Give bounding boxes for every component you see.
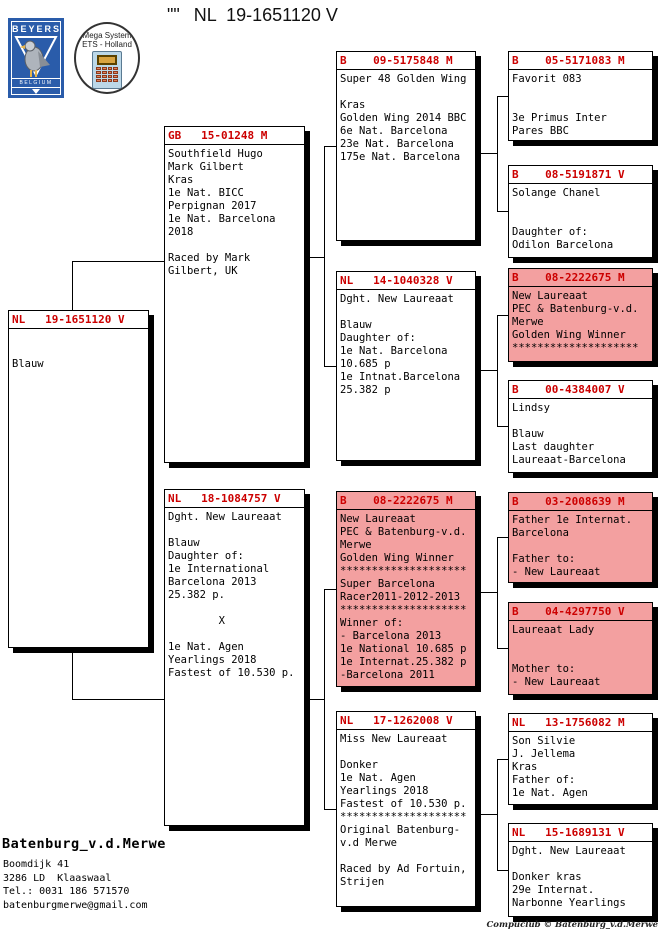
ring-number-header: NL 18-1084757 V <box>165 490 304 508</box>
pedigree-box-body: Lindsy Blauw Last daughter Laureaat-Barc… <box>509 399 652 467</box>
ring-number-header: NL 13-1756082 M <box>509 714 652 732</box>
pedigree-box-body: Dght. New Laureaat Donker kras 29e Inter… <box>509 842 652 910</box>
pedigree-connector <box>497 96 498 211</box>
owner-name: Batenburg_v.d.Merwe <box>2 836 166 852</box>
pedigree-connector <box>481 814 497 815</box>
pedigree-box-grandmother-paternal: NL 14-1040328 V Dght. New Laureaat Blauw… <box>336 271 476 461</box>
pedigree-connector <box>72 261 164 262</box>
pedigree-box-great-grandparent: B 00-4384007 V Lindsy Blauw Last daughte… <box>508 380 653 473</box>
pedigree-connector <box>497 315 498 426</box>
ring-number-header: NL 17-1262008 V <box>337 712 475 730</box>
pedigree-box-subject: NL 19-1651120 V Blauw <box>8 310 149 648</box>
beyers-logo: BEYERS BELGIUM <box>8 18 64 98</box>
pedigree-box-mother: NL 18-1084757 V Dght. New Laureaat Blauw… <box>164 489 305 826</box>
beyers-logo-triangle <box>32 89 40 94</box>
ring-number-header: B 05-5171083 M <box>509 52 652 70</box>
calculator-keys <box>96 67 118 82</box>
pedigree-box-body: Father 1e Internat. Barcelona Father to:… <box>509 511 652 579</box>
pedigree-connector <box>481 592 497 593</box>
pedigree-box-body: Southfield Hugo Mark Gilbert Kras 1e Nat… <box>165 145 304 278</box>
pedigree-connector <box>324 366 336 367</box>
ring-number-header: B 08-2222675 M <box>337 492 475 510</box>
pedigree-box-body: Dght. New Laureaat Blauw Daughter of: 1e… <box>337 290 475 397</box>
mega-system-logo: Mega System ETS - Holland <box>74 22 140 94</box>
pedigree-box-great-grandparent: B 08-5191871 V Solange Chanel Daughter o… <box>508 165 653 258</box>
pedigree-box-body: Miss New Laureaat Donker 1e Nat. Agen Ye… <box>337 730 475 889</box>
mega-system-name: Mega System <box>76 31 138 40</box>
ring-number-header: B 09-5175848 M <box>337 52 475 70</box>
pedigree-box-grandfather-paternal: B 09-5175848 M Super 48 Golden Wing Kras… <box>336 51 476 241</box>
pedigree-connector <box>497 315 508 316</box>
ring-number-header: B 00-4384007 V <box>509 381 652 399</box>
pedigree-connector <box>324 146 336 147</box>
ring-number-header: GB 15-01248 M <box>165 127 304 145</box>
pedigree-box-great-grandparent: NL 15-1689131 V Dght. New Laureaat Donke… <box>508 823 653 917</box>
beyers-logo-frame: BEYERS BELGIUM <box>11 21 61 95</box>
pedigree-connector <box>497 870 508 871</box>
mega-system-subtitle: ETS - Holland <box>76 40 138 49</box>
calculator-screen <box>97 55 117 65</box>
pedigree-box-great-grandparent: B 05-5171083 M Favorit 083 3e Primus Int… <box>508 51 653 141</box>
pedigree-connector <box>497 537 498 648</box>
pedigree-connector <box>310 699 324 700</box>
pedigree-connector <box>481 153 497 154</box>
pedigree-box-body: Son Silvie J. Jellema Kras Father of: 1e… <box>509 732 652 800</box>
pedigree-box-grandmother-maternal: NL 17-1262008 V Miss New Laureaat Donker… <box>336 711 476 907</box>
owner-address: Boomdijk 41 3286 LD Klaaswaal Tel.: 0031… <box>3 858 148 912</box>
pedigree-connector <box>72 261 73 310</box>
pedigree-box-great-grandparent: B 08-2222675 M New Laureaat PEC & Batenb… <box>508 268 653 362</box>
ring-number-header: B 08-5191871 V <box>509 166 652 184</box>
ring-number-header: B 08-2222675 M <box>509 269 652 287</box>
pedigree-connector <box>481 370 497 371</box>
pedigree-connector <box>72 699 164 700</box>
pedigree-box-body: New Laureaat PEC & Batenburg-v.d. Merwe … <box>337 510 475 682</box>
pedigree-connector <box>497 759 498 870</box>
title-ring-number: NL 19-1651120 V <box>194 5 338 25</box>
pedigree-box-great-grandparent: B 04-4297750 V Laureaat Lady Mother to: … <box>508 602 653 695</box>
pedigree-box-body: Super 48 Golden Wing Kras Golden Wing 20… <box>337 70 475 164</box>
pedigree-connector <box>324 589 325 809</box>
pedigree-connector <box>497 537 508 538</box>
pedigree-connector <box>497 426 508 427</box>
pedigree-box-great-grandparent: B 03-2008639 M Father 1e Internat. Barce… <box>508 492 653 583</box>
beyers-logo-text: BEYERS <box>12 24 60 34</box>
pedigree-connector <box>497 648 508 649</box>
pedigree-box-great-grandparent: NL 13-1756082 M Son Silvie J. Jellema Kr… <box>508 713 653 805</box>
pedigree-box-body: Dght. New Laureaat Blauw Daughter of: 1e… <box>165 508 304 680</box>
ring-number-header: NL 19-1651120 V <box>9 311 148 329</box>
ring-number-header: B 03-2008639 M <box>509 493 652 511</box>
pedigree-page: BEYERS BELGIUM Mega System ETS - Holland <box>0 0 662 951</box>
pedigree-box-body: New Laureaat PEC & Batenburg-v.d. Merwe … <box>509 287 652 355</box>
title-quote: "" <box>167 5 180 25</box>
pedigree-box-body: Solange Chanel Daughter of: Odilon Barce… <box>509 184 652 252</box>
ring-number-header: NL 15-1689131 V <box>509 824 652 842</box>
pedigree-box-father: GB 15-01248 M Southfield Hugo Mark Gilbe… <box>164 126 305 463</box>
ring-number-header: NL 14-1040328 V <box>337 272 475 290</box>
pedigree-connector <box>310 257 324 258</box>
pedigree-connector <box>324 146 325 366</box>
pedigree-connector <box>497 211 508 212</box>
pedigree-connector <box>72 648 73 699</box>
pedigree-box-grandfather-maternal: B 08-2222675 M New Laureaat PEC & Batenb… <box>336 491 476 687</box>
pedigree-connector <box>497 759 508 760</box>
pedigree-box-body: Laureaat Lady Mother to: - New Laureaat <box>509 621 652 689</box>
ring-number-header: B 04-4297750 V <box>509 603 652 621</box>
compuclub-credit: Compuclub © Batenburg_v.d.Merwe <box>487 920 658 930</box>
page-title: ""NL 19-1651120 V <box>167 5 338 26</box>
pedigree-box-body: Blauw <box>9 329 148 371</box>
pedigree-box-body: Favorit 083 3e Primus Inter Pares BBC <box>509 70 652 138</box>
calculator-icon <box>92 51 122 89</box>
pedigree-connector <box>497 96 508 97</box>
pedigree-connector <box>324 589 336 590</box>
beyers-logo-country: BELGIUM <box>12 78 60 88</box>
pedigree-connector <box>324 809 336 810</box>
pigeon-icon <box>14 35 58 81</box>
